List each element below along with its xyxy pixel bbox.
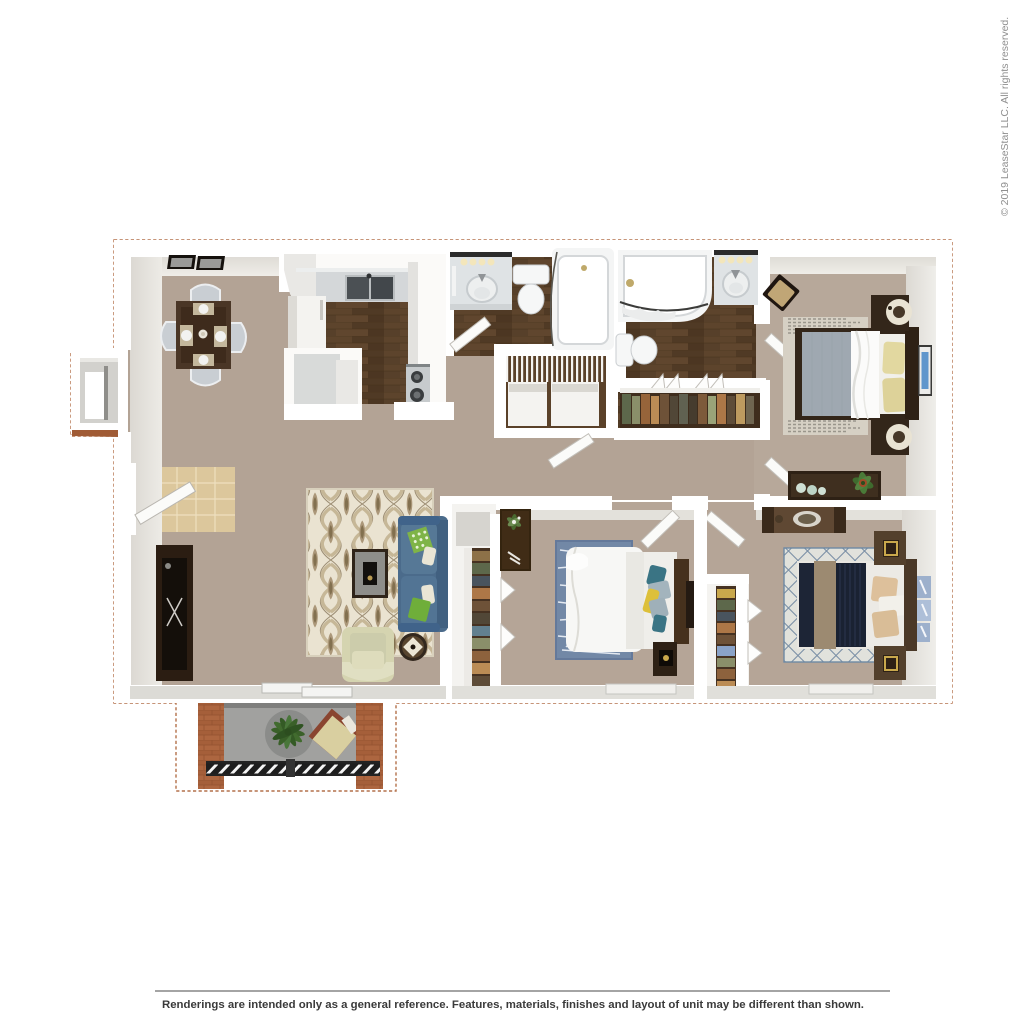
svg-text:Renderings are intended only a: Renderings are intended only as a genera… — [162, 999, 864, 1011]
svg-text:© 2019 LeaseStar LLC. All righ: © 2019 LeaseStar LLC. All rights reserve… — [999, 17, 1011, 216]
